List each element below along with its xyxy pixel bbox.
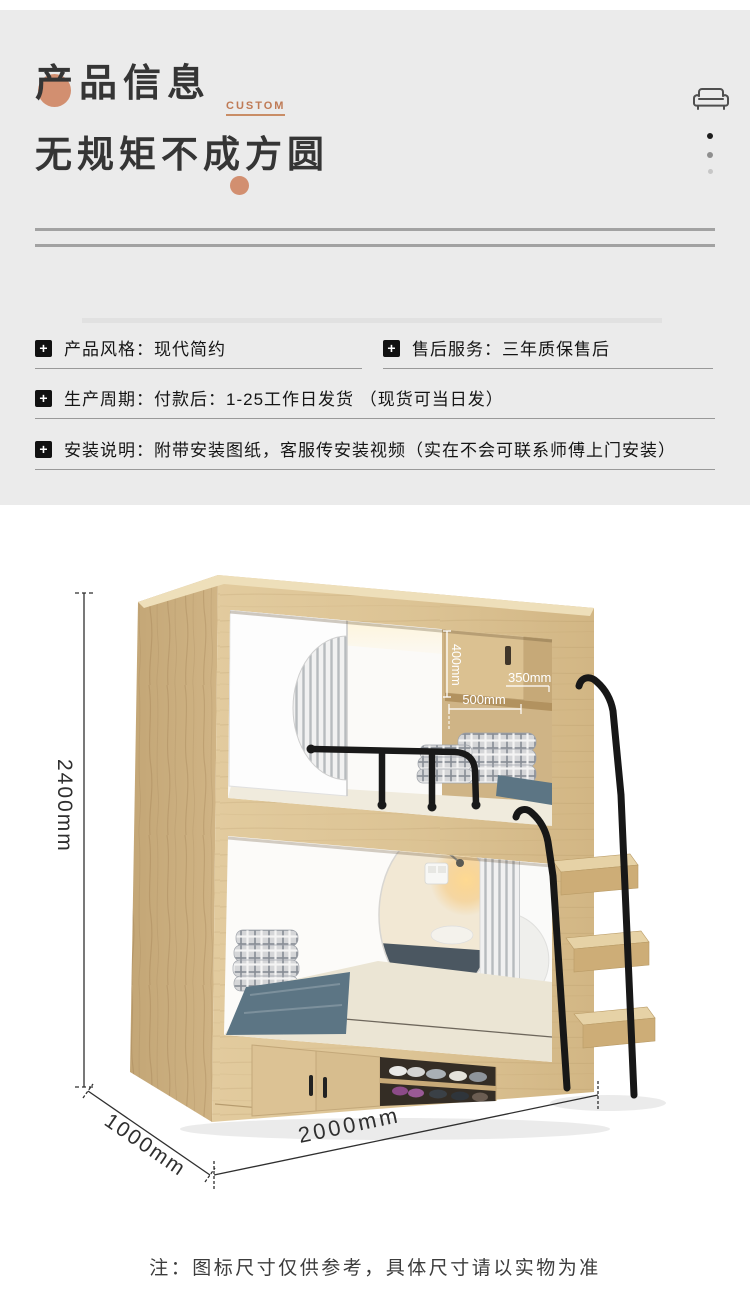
cabinet-door-left — [252, 1045, 316, 1116]
decor-dot — [708, 169, 713, 174]
upper-bunk — [228, 610, 552, 826]
cabinet-handle — [505, 646, 511, 665]
dim-depth-label: 1000mm — [100, 1109, 190, 1181]
size-disclaimer-note: 注：图标尺寸仅供参考，具体尺寸请以实物为准 — [0, 1253, 750, 1280]
page-subtitle: 无规矩不成方圆 — [35, 124, 329, 178]
spec-text: 售后服务：三年质保售后 — [412, 340, 610, 359]
pillow — [431, 926, 473, 944]
floor-shadow — [550, 1095, 666, 1111]
dim-height-label: 2400mm — [53, 759, 76, 853]
bed-dimension-diagram: 400mm 350mm 500mm — [0, 535, 750, 1235]
hanging-cabinet-side — [524, 634, 552, 703]
title-badge: CUSTOM — [226, 100, 285, 116]
door-handle — [323, 1077, 327, 1098]
plus-icon: + — [35, 441, 52, 458]
dim-cabinet-height: 400mm — [449, 644, 463, 686]
header-divider — [35, 228, 715, 247]
decor-dot — [707, 133, 713, 139]
page-title: 产品信息 — [35, 62, 211, 108]
plus-icon: + — [383, 340, 400, 357]
spec-text: 产品风格：现代简约 — [64, 340, 226, 359]
dimension-line-height — [75, 593, 95, 1087]
spec-row-installation: + 安装说明：附带安装图纸，客服传安装视频（实在不会可联系师傅上门安装） — [35, 441, 715, 470]
spec-text: 生产周期：付款后：1-25工作日发货 （现货可当日发） — [64, 390, 504, 409]
sofa-icon — [692, 85, 730, 113]
decor-band — [82, 318, 662, 323]
decor-circle — [230, 176, 249, 195]
spec-row-service: + 售后服务：三年质保售后 — [383, 340, 713, 369]
dim-cabinet-depth: 350mm — [508, 670, 551, 685]
lower-bunk — [224, 827, 552, 1062]
spec-row-style: + 产品风格：现代简约 — [35, 340, 362, 369]
spec-text: 安装说明：附带安装图纸，客服传安装视频（实在不会可联系师傅上门安装） — [64, 441, 676, 460]
dim-cabinet-width: 500mm — [462, 692, 505, 707]
decor-dot — [707, 152, 713, 158]
left-side-grain — [130, 575, 218, 1122]
plus-icon: + — [35, 390, 52, 407]
product-info-page: 产品信息 CUSTOM 无规矩不成方圆 + 产品风格：现代简约 + 售后服务：三… — [0, 0, 750, 1306]
plus-icon: + — [35, 340, 52, 357]
door-handle — [309, 1075, 313, 1096]
spec-row-production: + 生产周期：付款后：1-25工作日发货 （现货可当日发） — [35, 390, 715, 419]
